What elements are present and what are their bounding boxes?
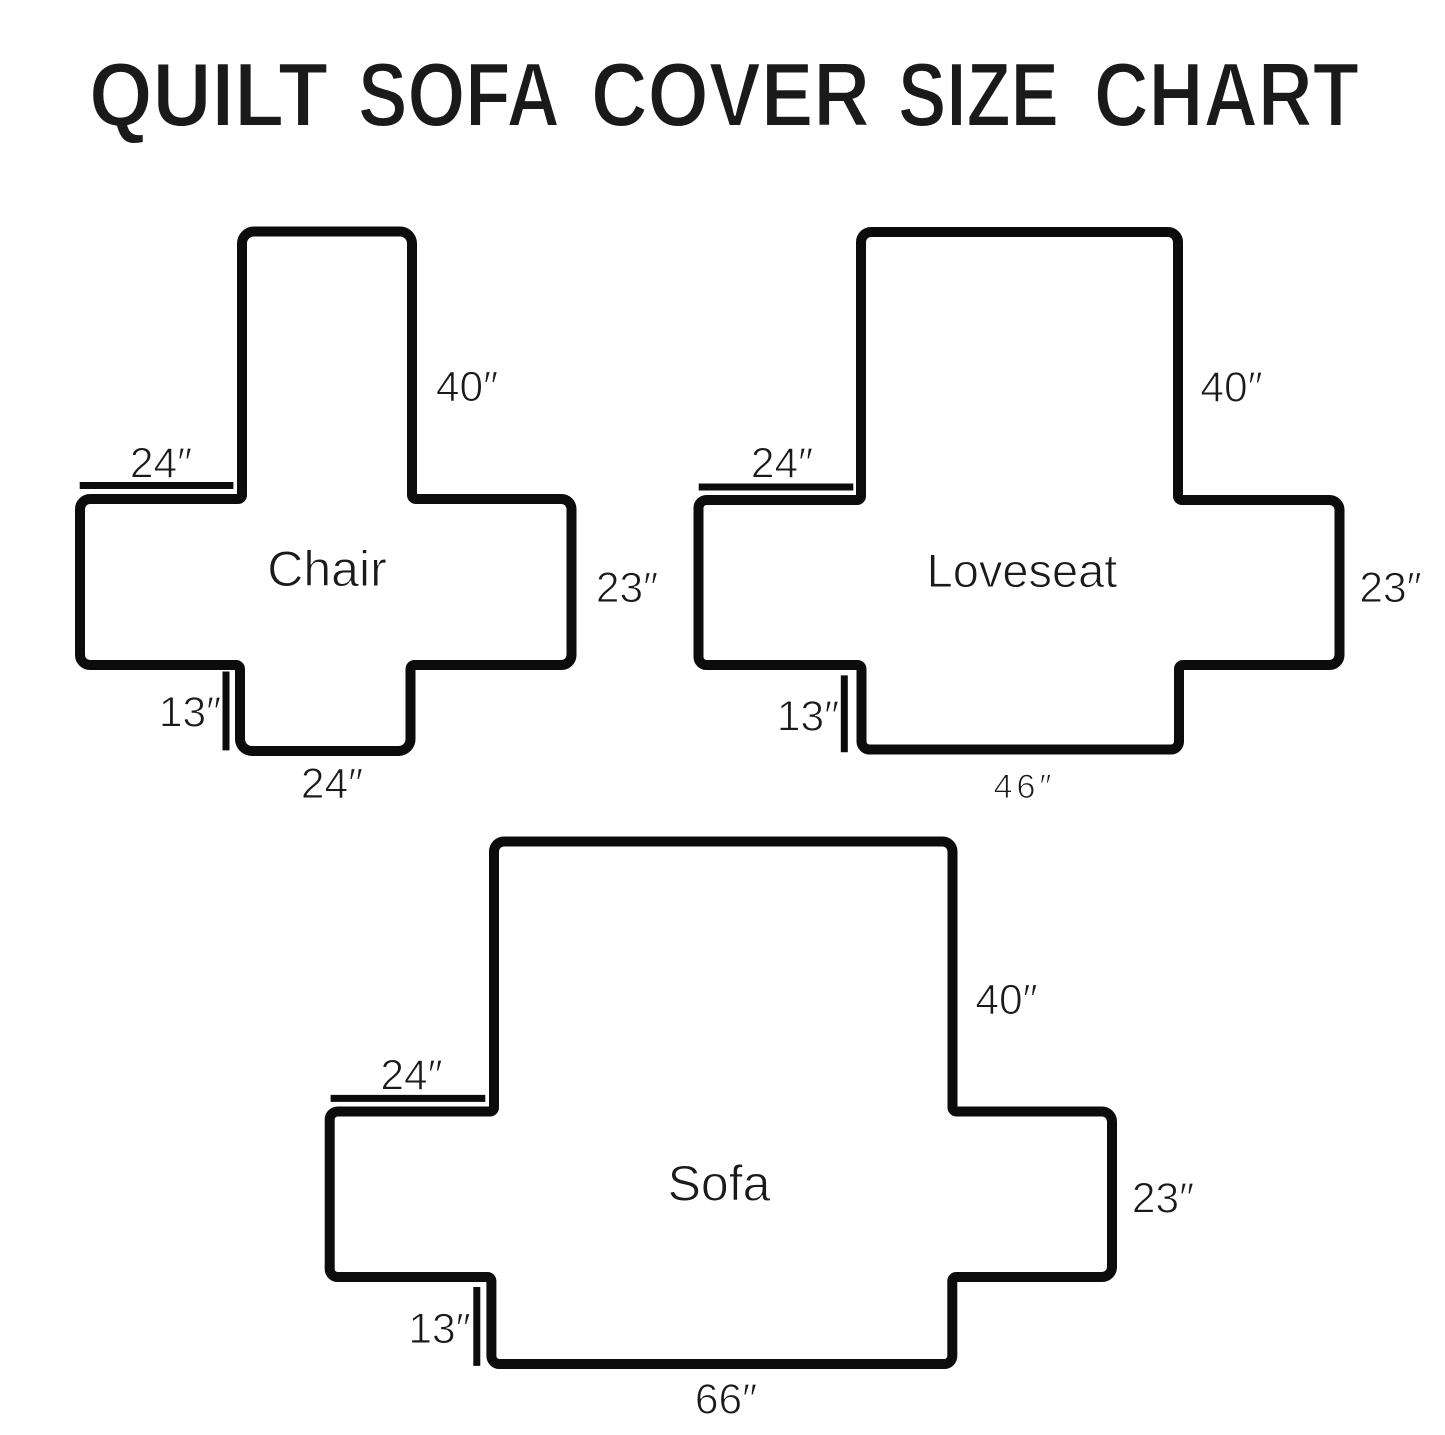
svg-text:40″: 40″: [436, 364, 498, 411]
svg-text:Chair: Chair: [267, 541, 386, 597]
svg-text:Sofa: Sofa: [668, 1156, 771, 1212]
svg-text:13″: 13″: [408, 1306, 470, 1353]
svg-text:SOFA: SOFA: [358, 45, 560, 146]
svg-text:24″: 24″: [130, 441, 192, 488]
svg-text:23″: 23″: [596, 565, 658, 612]
svg-text:23″: 23″: [1359, 565, 1421, 612]
svg-text:24″: 24″: [751, 441, 813, 488]
svg-text:40″: 40″: [975, 977, 1037, 1024]
svg-text:24″: 24″: [301, 761, 363, 808]
svg-text:66″: 66″: [695, 1377, 757, 1424]
svg-text:40″: 40″: [1200, 365, 1262, 412]
svg-text:COVER: COVER: [591, 45, 870, 146]
svg-text:24″: 24″: [380, 1053, 442, 1100]
svg-text:13″: 13″: [159, 690, 221, 737]
svg-text:Loveseat: Loveseat: [927, 544, 1118, 597]
svg-text:QUILT: QUILT: [89, 45, 328, 146]
svg-text:SIZE: SIZE: [898, 45, 1059, 146]
svg-text:46″: 46″: [994, 768, 1056, 806]
svg-text:23″: 23″: [1132, 1176, 1194, 1223]
svg-text:CHART: CHART: [1094, 45, 1359, 146]
svg-text:13″: 13″: [777, 694, 839, 741]
